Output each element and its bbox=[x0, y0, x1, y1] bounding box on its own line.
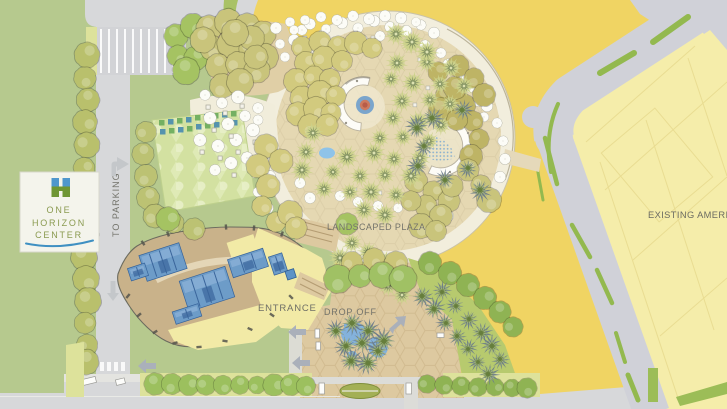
svg-text:ENTRANCE: ENTRANCE bbox=[258, 303, 317, 314]
svg-text:ONE: ONE bbox=[47, 205, 72, 215]
svg-text:TO PARKING: TO PARKING bbox=[111, 172, 121, 237]
svg-text:EXISTING AMERICAN EXPRESS: EXISTING AMERICAN EXPRESS bbox=[648, 210, 727, 220]
svg-text:HORIZON: HORIZON bbox=[32, 218, 86, 228]
svg-text:DROP OFF: DROP OFF bbox=[324, 307, 377, 317]
svg-text:CENTER: CENTER bbox=[35, 230, 83, 240]
svg-text:LANDSCAPED PLAZA: LANDSCAPED PLAZA bbox=[327, 222, 425, 232]
